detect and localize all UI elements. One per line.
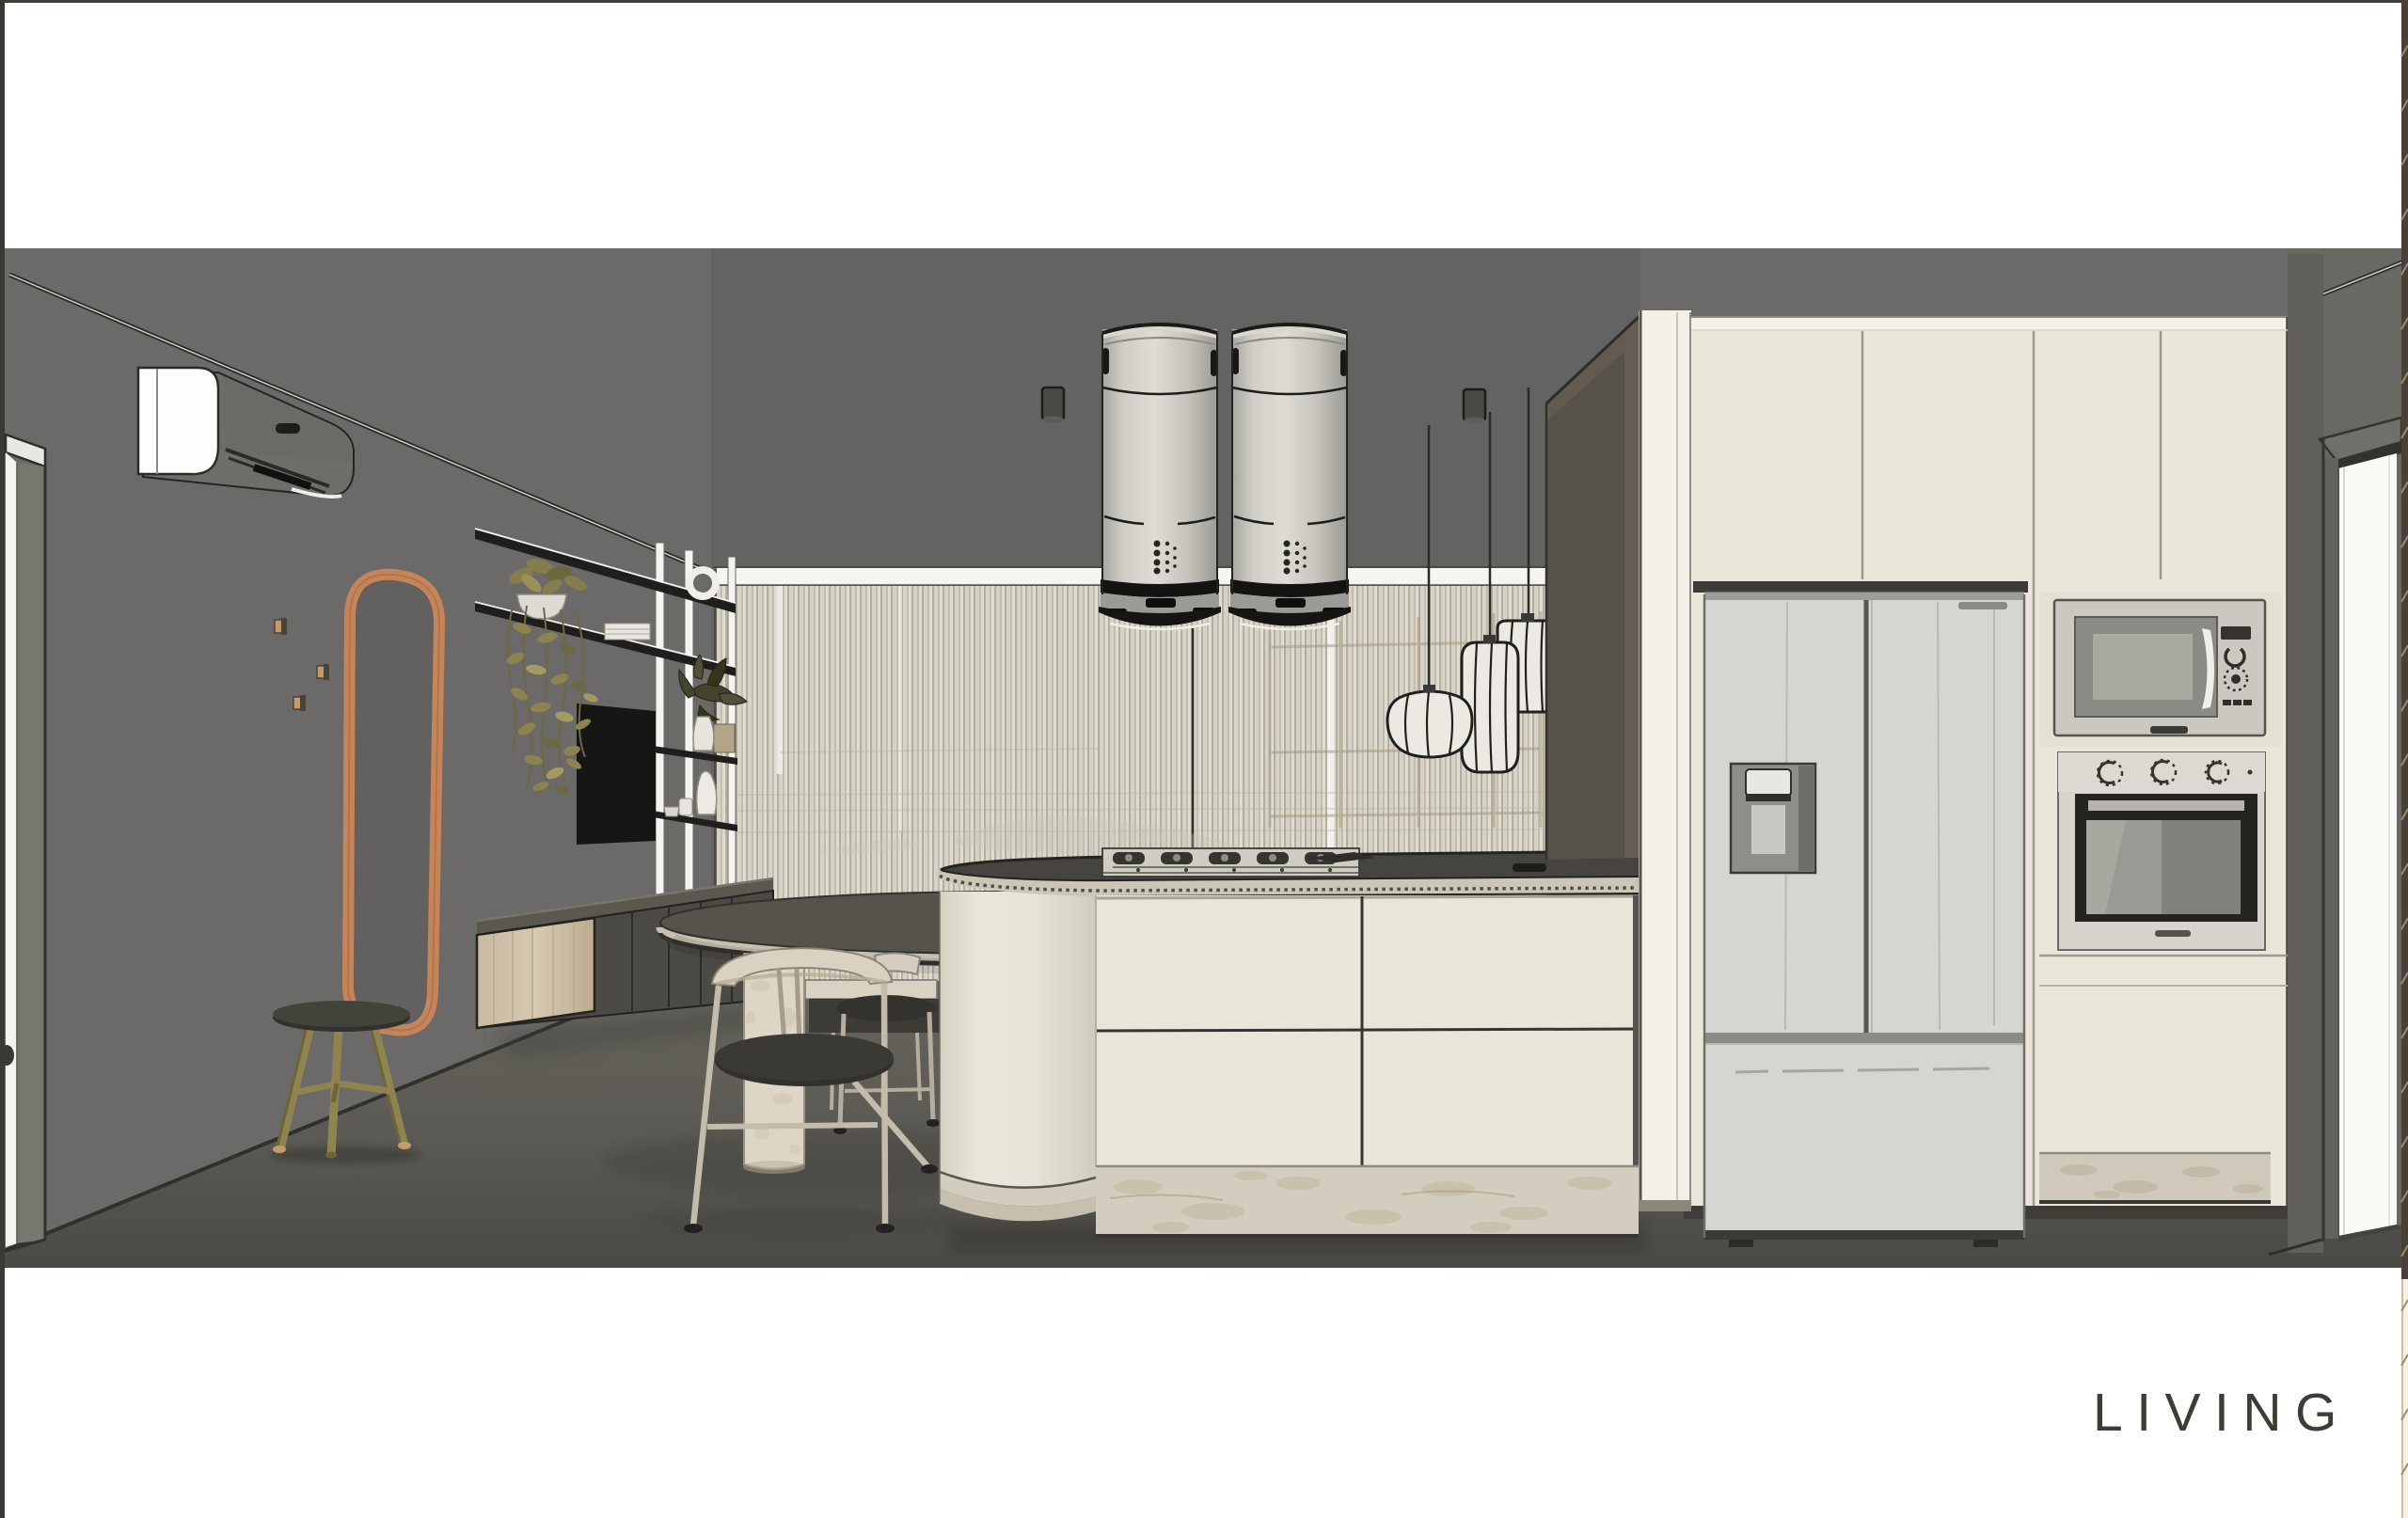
svg-text:LIVING: LIVING (2093, 1383, 2351, 1443)
